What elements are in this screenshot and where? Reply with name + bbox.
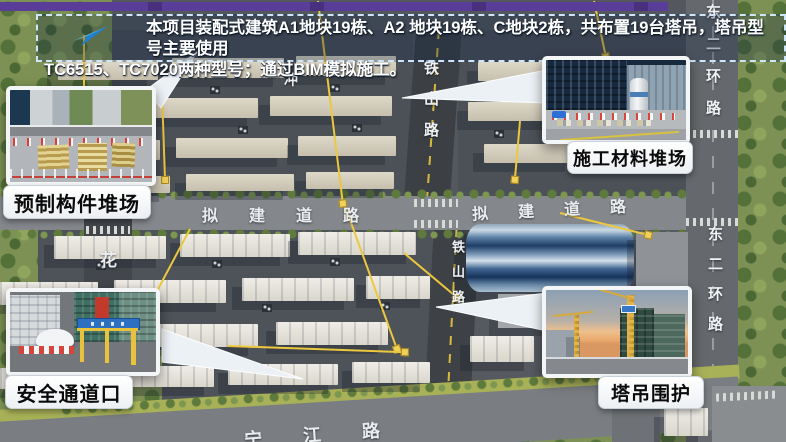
precast-yard-label: 预制构件堆场	[3, 185, 151, 219]
crosswalk-tieshan-north	[414, 199, 458, 207]
road-label-tieshan-lower: 铁山路	[448, 240, 467, 315]
safety-passage-label: 安全通道口	[5, 375, 133, 409]
crosswalk-east-ring-2	[686, 218, 738, 226]
accent-bar	[0, 2, 668, 11]
materials-yard-inset-image	[542, 56, 690, 144]
white-building-bottom-corner	[664, 408, 708, 436]
crosswalk-left-road	[86, 226, 130, 234]
road-label-east-ring-lower: 东二环路	[704, 226, 725, 346]
materials-yard-label: 施工材料堆场	[567, 141, 693, 174]
road-label-proposed-left: 拟建道路	[202, 202, 390, 226]
info-banner: 本项目装配式建筑A1地块19栋、A2 地块19栋、C地块2栋，共布置19台塔吊，…	[36, 14, 786, 62]
safety-passage-inset-image	[6, 288, 160, 376]
blue-curved-roof-building	[466, 224, 634, 292]
tower-crane-inset-image	[542, 286, 692, 378]
precast-yard-inset-image	[6, 86, 156, 186]
crosswalk-tieshan-south	[414, 220, 458, 228]
gray-annex-building	[636, 232, 688, 290]
paper-plane-arrow-icon	[72, 23, 110, 49]
banner-line-1: 本项目装配式建筑A1地块19栋、A2 地块19栋、C地块2栋，共布置19台塔吊，…	[44, 18, 778, 60]
road-label-partial-hua: 花	[100, 246, 117, 271]
white-building-lower-right	[470, 336, 534, 362]
bim-construction-site-slide: 铁山路 铁山路 东二环路 东二环路 拟建道路 拟建道路 宁江路 花 冲 本项目装…	[0, 0, 786, 442]
tower-crane-label: 塔吊围护	[598, 376, 704, 409]
